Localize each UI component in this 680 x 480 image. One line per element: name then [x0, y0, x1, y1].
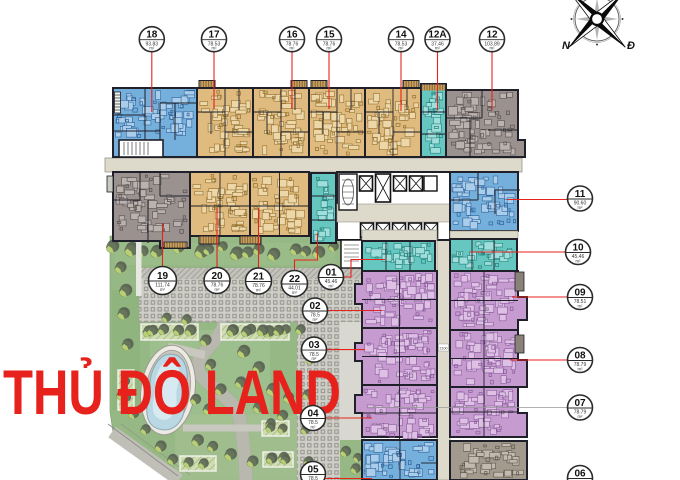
svg-text:05: 05	[307, 465, 319, 476]
svg-text:m²: m²	[578, 414, 583, 419]
svg-text:m²: m²	[327, 46, 332, 51]
svg-text:m²: m²	[578, 205, 583, 210]
svg-text:m²: m²	[329, 284, 334, 289]
svg-text:m²: m²	[312, 356, 317, 361]
svg-text:m²: m²	[215, 287, 220, 292]
svg-text:m²: m²	[311, 425, 316, 430]
svg-text:m²: m²	[160, 287, 165, 292]
svg-text:11: 11	[575, 189, 586, 200]
svg-text:02: 02	[309, 301, 321, 312]
svg-text:01: 01	[325, 268, 337, 279]
svg-text:17: 17	[208, 30, 220, 41]
svg-text:m²: m²	[313, 317, 318, 322]
svg-text:12A: 12A	[428, 30, 446, 41]
svg-text:18: 18	[146, 30, 158, 41]
svg-text:2100: 2100	[440, 347, 448, 351]
svg-text:12: 12	[486, 30, 498, 41]
svg-text:19: 19	[157, 271, 169, 282]
svg-text:Đ: Đ	[627, 40, 635, 52]
svg-text:m²: m²	[292, 290, 297, 295]
svg-text:07: 07	[574, 398, 586, 409]
svg-text:m²: m²	[212, 46, 217, 51]
svg-text:THỦ ĐÔ LAND: THỦ ĐÔ LAND	[3, 357, 341, 428]
svg-text:04: 04	[307, 409, 319, 420]
svg-text:m²: m²	[256, 288, 261, 293]
svg-text:10: 10	[572, 243, 584, 254]
svg-text:08: 08	[574, 351, 586, 362]
svg-text:m²: m²	[578, 304, 583, 309]
svg-text:m²: m²	[399, 46, 404, 51]
svg-text:06: 06	[574, 469, 586, 480]
svg-text:m²: m²	[576, 259, 581, 264]
svg-text:03: 03	[308, 340, 320, 351]
svg-text:m²: m²	[290, 46, 295, 51]
svg-text:14: 14	[395, 30, 407, 41]
svg-text:m²: m²	[490, 46, 495, 51]
svg-text:m²: m²	[578, 367, 583, 372]
svg-text:16: 16	[286, 30, 298, 41]
svg-text:21: 21	[253, 272, 265, 283]
svg-text:m²: m²	[435, 46, 440, 51]
svg-text:22: 22	[289, 274, 301, 285]
svg-text:78.5: 78.5	[308, 476, 318, 480]
svg-text:20: 20	[211, 271, 223, 282]
svg-text:15: 15	[323, 30, 335, 41]
svg-text:N: N	[562, 40, 571, 52]
svg-text:m²: m²	[149, 46, 154, 51]
svg-text:09: 09	[574, 288, 586, 299]
